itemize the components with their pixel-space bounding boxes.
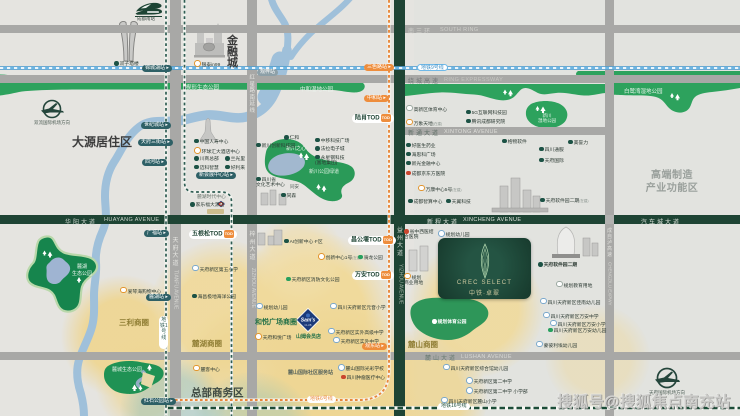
svg-text:Sam's: Sam's bbox=[301, 318, 316, 324]
svg-text:CLUB: CLUB bbox=[305, 323, 312, 327]
